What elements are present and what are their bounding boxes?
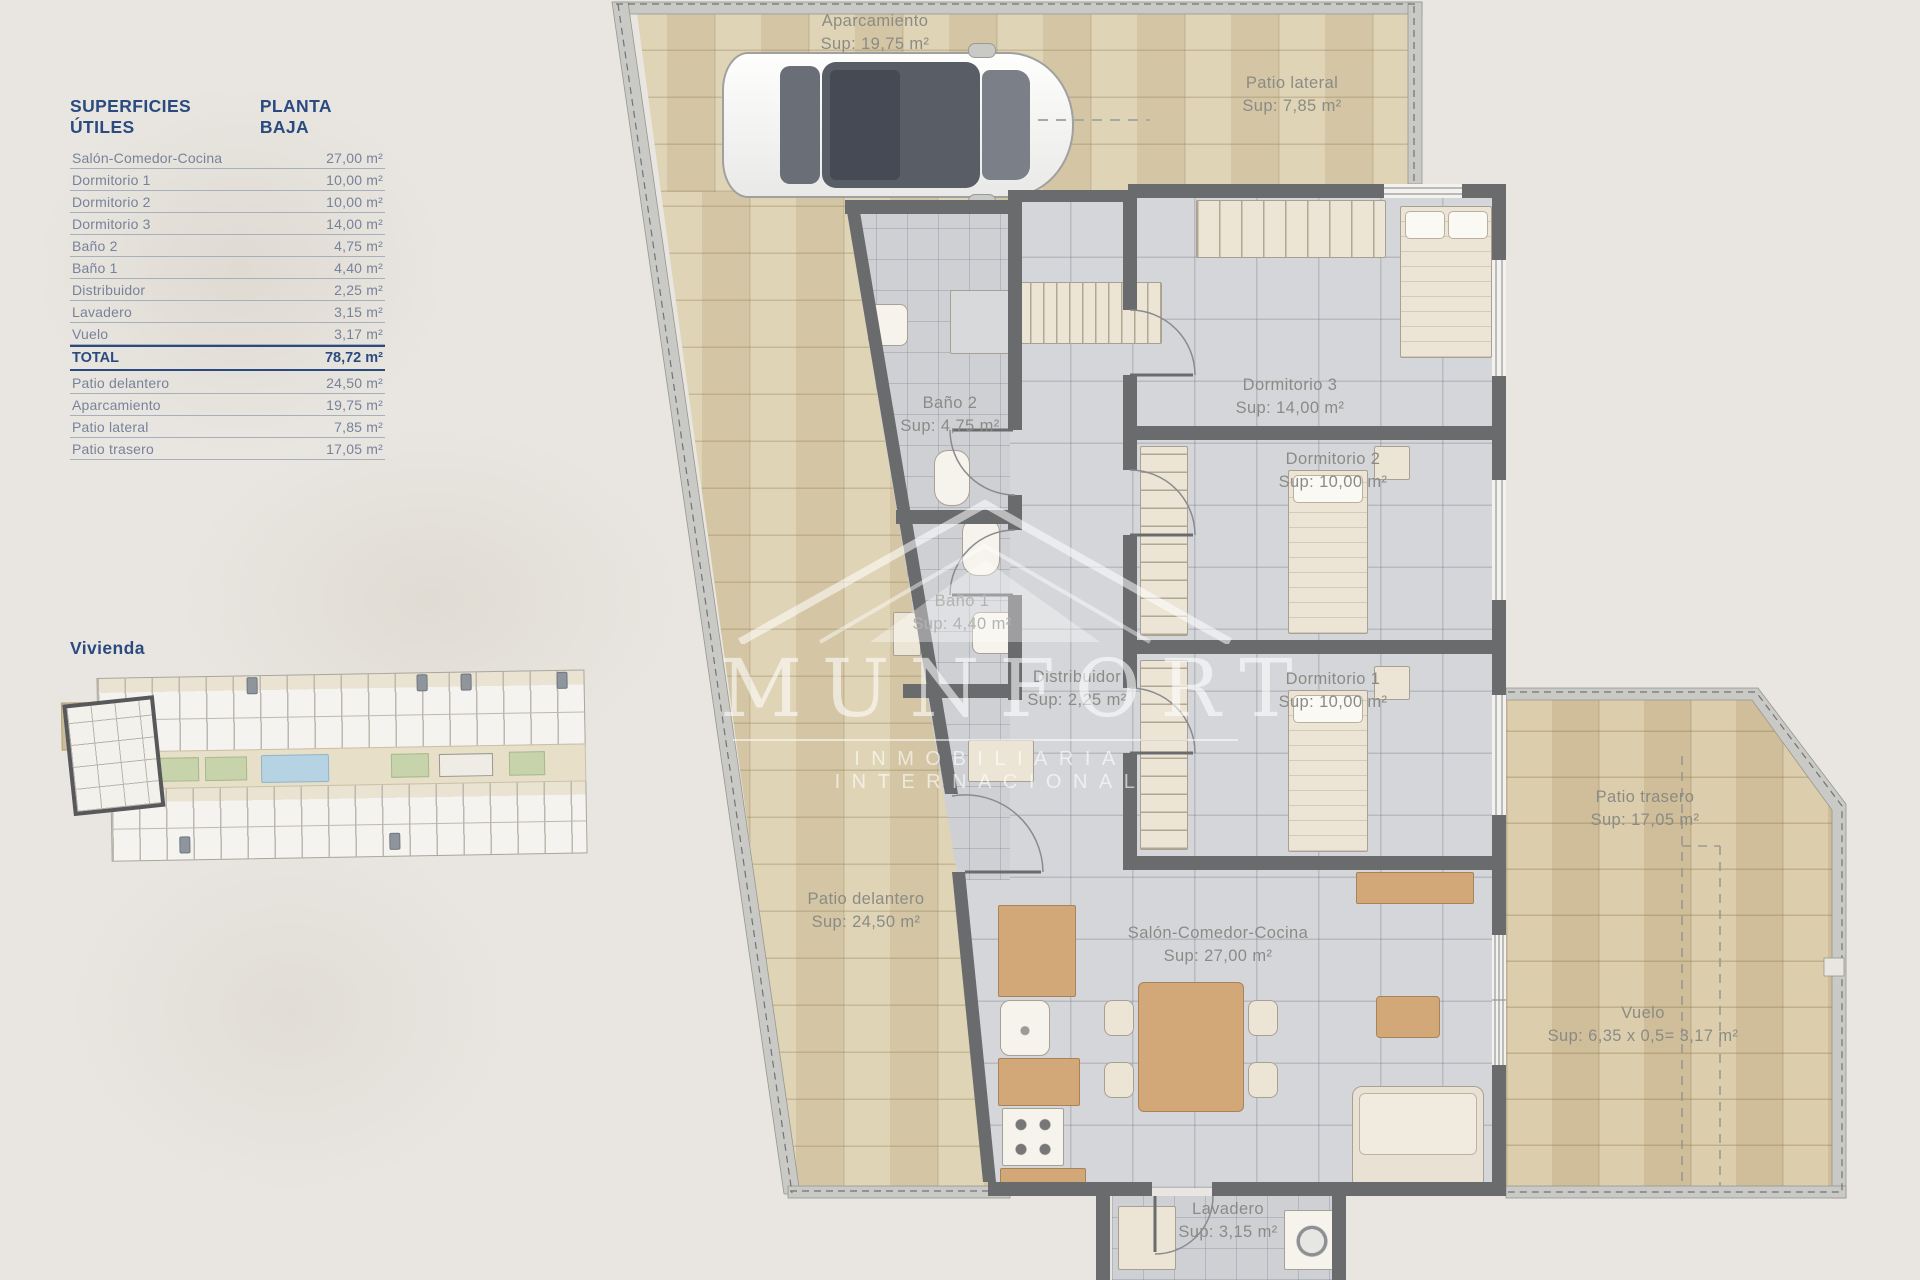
toilet <box>934 450 970 506</box>
sofa <box>1352 1086 1484 1190</box>
garden-patch <box>509 751 545 776</box>
wardrobe <box>1140 446 1188 636</box>
label-bano2: Baño 2 Sup: 4,75 m² <box>900 392 999 439</box>
mini-car-icon <box>389 833 400 850</box>
shower <box>950 290 1010 354</box>
car-sunroof <box>830 70 900 180</box>
mini-car-icon <box>460 673 471 690</box>
kitchen-cabinet <box>998 1058 1080 1106</box>
washbasin <box>868 304 908 346</box>
floor-patio-trasero <box>1506 696 1840 1192</box>
car-rear-window <box>780 66 820 184</box>
label-dormitorio3: Dormitorio 3 Sup: 14,00 m² <box>1236 374 1345 421</box>
tv-unit <box>1356 872 1474 904</box>
table-total-row: TOTAL78,72 m² <box>70 345 385 371</box>
car-windshield <box>982 70 1030 180</box>
siteplan-structure <box>439 753 493 777</box>
table-header: SUPERFICIES ÚTILES PLANTA BAJA <box>70 96 385 138</box>
table-row: Aparcamiento19,75 m² <box>70 394 385 416</box>
kitchen-counter <box>998 905 1076 997</box>
table-row: Dormitorio 110,00 m² <box>70 169 385 191</box>
car-mirror <box>968 43 996 58</box>
coffee-table <box>1376 996 1440 1038</box>
label-salon: Salón-Comedor-Cocina Sup: 27,00 m² <box>1128 922 1308 969</box>
car-top-view <box>722 52 1074 198</box>
double-bed <box>1400 206 1492 358</box>
table-row: Baño 24,75 m² <box>70 235 385 257</box>
stove <box>1002 1108 1064 1166</box>
floorplan-sheet: SUPERFICIES ÚTILES PLANTA BAJA Salón-Com… <box>0 0 1920 1280</box>
label-patio-delantero: Patio delantero Sup: 24,50 m² <box>808 888 925 935</box>
chair <box>1248 1062 1278 1098</box>
garden-patch <box>391 753 429 778</box>
mini-car-icon <box>556 672 567 689</box>
surfaces-table: SUPERFICIES ÚTILES PLANTA BAJA Salón-Com… <box>70 96 385 371</box>
label-patio-lateral: Patio lateral Sup: 7,85 m² <box>1242 72 1341 119</box>
kitchen-cabinet <box>1000 1168 1086 1192</box>
pool <box>261 754 329 783</box>
siteplan-thumbnail <box>56 661 591 866</box>
table-row: Patio lateral7,85 m² <box>70 416 385 438</box>
chair <box>1104 1000 1134 1036</box>
garden-patch <box>157 757 199 782</box>
table-row: Patio delantero24,50 m² <box>70 372 385 394</box>
mini-car-icon <box>416 674 427 691</box>
car-mirror <box>968 194 996 209</box>
laundry-cabinet <box>1118 1206 1176 1270</box>
background-blotch <box>60 820 520 1200</box>
label-vuelo: Vuelo Sup: 6,35 x 0,5= 3,17 m² <box>1548 1002 1739 1049</box>
hall-cabinet <box>968 740 1034 782</box>
washing-machine <box>1284 1210 1340 1270</box>
label-aparcamiento: Aparcamiento Sup: 19,75 m² <box>821 10 930 57</box>
label-distribuidor: Distribuidor Sup: 2,25 m² <box>1027 666 1126 713</box>
label-lavadero: Lavadero Sup: 3,15 m² <box>1178 1198 1277 1245</box>
table-row: Baño 14,40 m² <box>70 257 385 279</box>
table-row: Dormitorio 210,00 m² <box>70 191 385 213</box>
mini-car-icon <box>246 677 257 694</box>
highlighted-unit <box>62 695 165 816</box>
table-row: Patio trasero17,05 m² <box>70 438 385 460</box>
table-row: Distribuidor2,25 m² <box>70 279 385 301</box>
exterior-surfaces-table: Patio delantero24,50 m² Aparcamiento19,7… <box>70 372 385 460</box>
label-bano1: Baño 1 Sup: 4,40 m² <box>912 590 1011 637</box>
label-patio-trasero: Patio trasero Sup: 17,05 m² <box>1591 786 1700 833</box>
closet <box>1016 282 1162 344</box>
table-row: Dormitorio 314,00 m² <box>70 213 385 235</box>
wardrobe <box>1140 660 1188 850</box>
chair <box>1104 1062 1134 1098</box>
table-row: Salón-Comedor-Cocina27,00 m² <box>70 147 385 169</box>
dining-table <box>1138 982 1244 1112</box>
table-title: SUPERFICIES ÚTILES <box>70 96 260 138</box>
label-dormitorio2: Dormitorio 2 Sup: 10,00 m² <box>1279 448 1388 495</box>
mini-car-icon <box>179 836 190 853</box>
garden-patch <box>205 756 247 781</box>
label-dormitorio1: Dormitorio 1 Sup: 10,00 m² <box>1279 668 1388 715</box>
table-row: Lavadero3,15 m² <box>70 301 385 323</box>
siteplan-row-top <box>96 669 585 754</box>
chair <box>1248 1000 1278 1036</box>
table-subtitle: PLANTA BAJA <box>260 96 385 138</box>
table-row: Vuelo3,17 m² <box>70 323 385 345</box>
kitchen-sink <box>1000 1000 1050 1056</box>
toilet <box>962 518 1000 576</box>
wardrobe <box>1196 200 1386 258</box>
siteplan-title: Vivienda <box>70 638 145 659</box>
